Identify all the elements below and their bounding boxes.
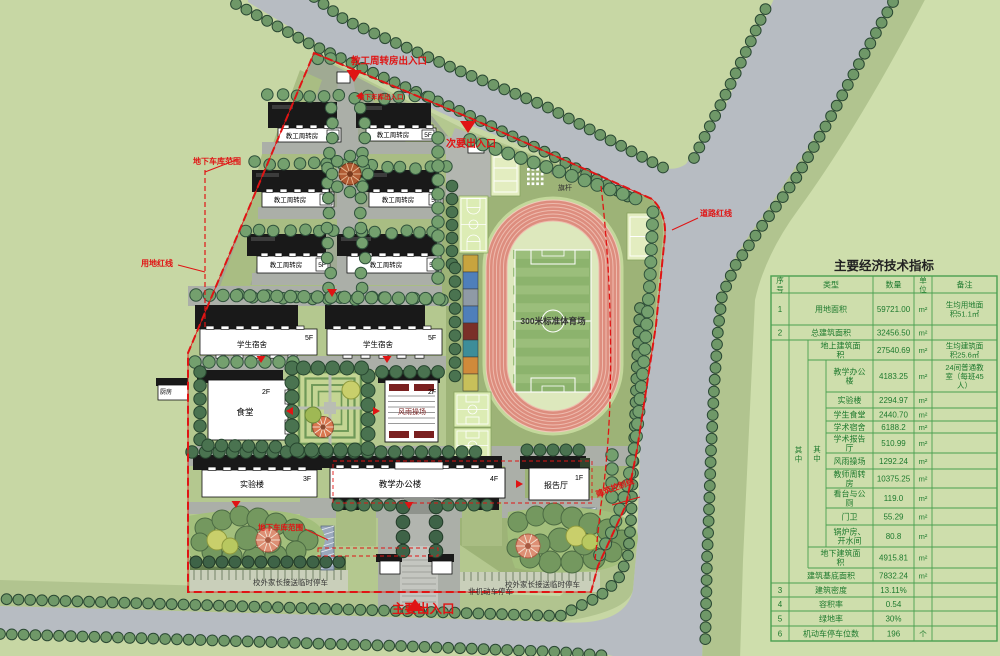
svg-text:300米标准体育场: 300米标准体育场 — [520, 316, 586, 326]
svg-text:27540.69: 27540.69 — [877, 346, 911, 355]
svg-text:510.99: 510.99 — [881, 439, 906, 448]
svg-text:3F: 3F — [303, 476, 311, 483]
svg-text:数量: 数量 — [886, 280, 902, 290]
svg-text:10375.25: 10375.25 — [877, 474, 911, 483]
svg-text:报告厅: 报告厅 — [544, 480, 568, 490]
svg-text:校外家长接送临时停车: 校外家长接送临时停车 — [253, 577, 328, 587]
svg-text:0.54: 0.54 — [886, 600, 902, 609]
svg-text:119.0: 119.0 — [884, 494, 904, 503]
svg-text:容积率: 容积率 — [819, 599, 843, 609]
svg-text:学术报告: 学术报告 — [834, 433, 866, 443]
svg-text:4: 4 — [778, 600, 783, 609]
svg-text:校外家长接送临时停车: 校外家长接送临时停车 — [505, 579, 580, 589]
svg-text:m²: m² — [919, 346, 928, 355]
svg-text:风雨操场: 风雨操场 — [398, 407, 426, 416]
svg-text:学术宿舍: 学术宿舍 — [834, 422, 866, 432]
svg-text:55.29: 55.29 — [883, 512, 904, 521]
svg-text:看台与公: 看台与公 — [834, 488, 866, 498]
svg-text:类型: 类型 — [823, 280, 839, 290]
svg-text:总建筑面积: 总建筑面积 — [811, 327, 851, 337]
svg-text:室（每班45: 室（每班45 — [945, 371, 983, 381]
svg-text:m²: m² — [919, 439, 928, 448]
svg-text:m²: m² — [919, 457, 928, 466]
svg-text:备注: 备注 — [957, 280, 973, 290]
svg-text:13.11%: 13.11% — [880, 586, 907, 595]
svg-text:教工周转房: 教工周转房 — [377, 130, 410, 139]
svg-text:教工周转房: 教工周转房 — [382, 195, 415, 204]
svg-text:4F: 4F — [490, 476, 498, 483]
svg-text:6188.2: 6188.2 — [881, 423, 906, 432]
svg-text:4183.25: 4183.25 — [879, 372, 908, 381]
svg-text:196: 196 — [887, 629, 901, 638]
svg-text:m²: m² — [919, 410, 928, 419]
svg-text:食堂: 食堂 — [236, 407, 253, 417]
svg-text:3: 3 — [778, 586, 783, 595]
svg-text:教工周转房: 教工周转房 — [270, 260, 303, 269]
svg-text:学生食堂: 学生食堂 — [834, 409, 866, 419]
svg-text:房: 房 — [846, 478, 854, 488]
svg-text:2F: 2F — [428, 389, 436, 396]
svg-text:教学办公: 教学办公 — [834, 366, 866, 376]
svg-text:5F: 5F — [424, 132, 432, 139]
svg-text:锅炉房、: 锅炉房、 — [834, 526, 866, 536]
svg-text:其: 其 — [813, 445, 821, 454]
svg-text:地下车库出入口: 地下车库出入口 — [358, 92, 404, 101]
svg-text:m²: m² — [919, 423, 928, 432]
svg-text:学生宿舍: 学生宿舍 — [363, 339, 393, 349]
svg-text:2440.70: 2440.70 — [879, 410, 908, 419]
svg-text:开水间: 开水间 — [838, 535, 862, 545]
svg-text:建筑密度: 建筑密度 — [815, 585, 847, 595]
svg-text:号: 号 — [776, 285, 784, 294]
svg-text:生均用地面: 生均用地面 — [946, 299, 984, 309]
svg-text:m²: m² — [919, 396, 928, 405]
svg-text:教工周转房出入口: 教工周转房出入口 — [350, 55, 427, 67]
svg-text:学生宿舍: 学生宿舍 — [237, 339, 267, 349]
svg-text:厕: 厕 — [846, 498, 854, 507]
svg-text:1F: 1F — [575, 475, 583, 482]
svg-text:教工周转房: 教工周转房 — [274, 195, 307, 204]
svg-text:中: 中 — [813, 453, 821, 463]
svg-text:厅: 厅 — [846, 443, 854, 452]
svg-text:道路红线: 道路红线 — [700, 208, 732, 218]
svg-text:5: 5 — [778, 614, 783, 623]
svg-text:地下建筑面: 地下建筑面 — [821, 548, 861, 558]
svg-text:位: 位 — [919, 284, 927, 294]
svg-text:旗杆: 旗杆 — [558, 183, 572, 192]
svg-text:5F: 5F — [428, 335, 436, 342]
svg-text:人）: 人） — [957, 381, 972, 390]
svg-text:教工周转房: 教工周转房 — [370, 260, 403, 269]
svg-text:中: 中 — [795, 453, 803, 463]
svg-text:教工周转房: 教工周转房 — [286, 131, 319, 140]
svg-text:教学办公楼: 教学办公楼 — [379, 479, 422, 489]
svg-text:m²: m² — [919, 328, 928, 337]
svg-text:门卫: 门卫 — [842, 511, 858, 521]
svg-text:楼: 楼 — [846, 375, 854, 385]
svg-text:30%: 30% — [885, 614, 901, 623]
svg-text:积25.6㎡: 积25.6㎡ — [950, 349, 980, 359]
svg-text:地下车库范围: 地下车库范围 — [193, 156, 241, 166]
svg-text:实验楼: 实验楼 — [240, 479, 264, 489]
svg-text:6: 6 — [778, 629, 783, 638]
svg-text:序: 序 — [776, 275, 784, 285]
svg-text:积: 积 — [837, 557, 845, 567]
svg-text:m²: m² — [919, 512, 928, 521]
svg-text:59721.00: 59721.00 — [877, 305, 911, 314]
svg-text:地下车库范围: 地下车库范围 — [258, 522, 303, 532]
svg-text:个: 个 — [919, 629, 927, 638]
svg-text:2F: 2F — [262, 389, 270, 396]
svg-text:7832.24: 7832.24 — [879, 571, 908, 580]
svg-text:5F: 5F — [305, 335, 313, 342]
svg-text:单: 单 — [919, 275, 927, 285]
svg-text:m²: m² — [919, 474, 928, 483]
svg-text:m²: m² — [919, 571, 928, 580]
svg-text:其: 其 — [795, 445, 803, 454]
svg-text:机动车停车位数: 机动车停车位数 — [803, 628, 859, 638]
svg-text:用地面积: 用地面积 — [815, 304, 847, 314]
svg-text:32456.50: 32456.50 — [877, 328, 911, 337]
svg-text:主要经济技术指标: 主要经济技术指标 — [834, 258, 935, 273]
svg-text:次要出入口: 次要出入口 — [446, 137, 496, 150]
svg-text:m²: m² — [919, 532, 928, 541]
svg-text:4915.81: 4915.81 — [879, 553, 908, 562]
svg-text:2: 2 — [778, 328, 783, 337]
svg-text:2294.97: 2294.97 — [879, 396, 908, 405]
svg-text:24间普通教: 24间普通教 — [945, 362, 984, 372]
svg-text:厨房: 厨房 — [160, 388, 172, 396]
svg-text:主要出入口: 主要出入口 — [392, 601, 455, 616]
svg-text:实验楼: 实验楼 — [838, 395, 862, 405]
svg-text:地上建筑面: 地上建筑面 — [821, 340, 861, 350]
svg-text:生均建筑面: 生均建筑面 — [946, 340, 984, 350]
svg-text:用地红线: 用地红线 — [140, 258, 173, 268]
svg-text:m²: m² — [919, 372, 928, 381]
svg-text:风雨操场: 风雨操场 — [834, 456, 866, 466]
svg-text:积: 积 — [837, 349, 845, 359]
svg-text:建筑基底面积: 建筑基底面积 — [807, 570, 855, 580]
svg-text:m²: m² — [919, 553, 928, 562]
svg-text:1: 1 — [778, 305, 783, 314]
svg-text:1292.24: 1292.24 — [879, 457, 908, 466]
svg-text:绿地率: 绿地率 — [819, 613, 843, 623]
svg-text:m²: m² — [919, 305, 928, 314]
svg-text:80.8: 80.8 — [886, 532, 902, 541]
svg-text:积51.1㎡: 积51.1㎡ — [950, 308, 980, 318]
svg-text:教师周转: 教师周转 — [834, 469, 866, 479]
svg-text:非机动车停车: 非机动车停车 — [468, 586, 513, 596]
svg-text:m²: m² — [919, 494, 928, 503]
